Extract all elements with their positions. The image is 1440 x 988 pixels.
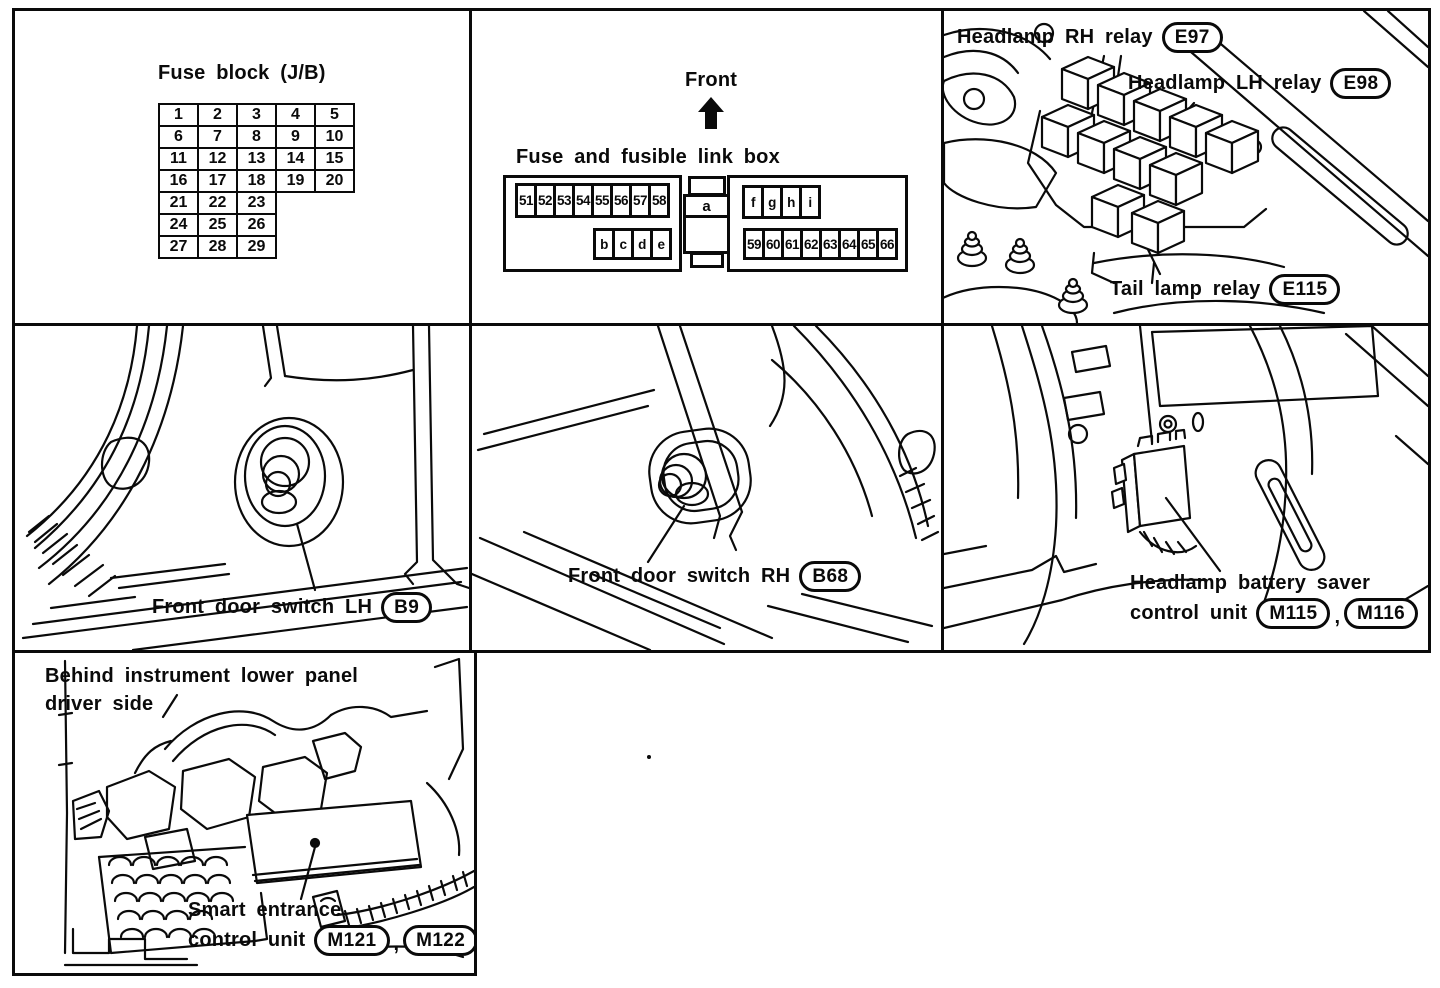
fuse-cell: 28	[197, 235, 238, 259]
label-text: Tail lamp relay	[1110, 278, 1260, 301]
label-battery-saver-line2: control unit M115 , M116	[1130, 598, 1418, 629]
door-switch-rh-illustration	[472, 326, 941, 650]
fuse-row: 6 7 8 9 10	[158, 125, 355, 149]
fuse-cell: 21	[158, 191, 199, 215]
front-arrow-icon	[698, 97, 724, 129]
fuse-cell: 20	[314, 169, 355, 193]
label-battery-saver-line1: Headlamp battery saver	[1130, 572, 1370, 595]
fuse-cell: 13	[236, 147, 277, 171]
front-direction-label: Front	[685, 69, 737, 92]
fuse-cell: 12	[197, 147, 238, 171]
connector-code-badge-b9: B9	[381, 592, 432, 623]
fuse-cell: 4	[275, 103, 316, 127]
fuse-cell: 23	[236, 191, 277, 215]
connector-cell-a: a	[683, 194, 730, 218]
fuse-cell: 3	[236, 103, 277, 127]
label-text: Headlamp LH relay	[1128, 72, 1321, 95]
arrow-stem	[705, 112, 717, 129]
fuse-link-box-title: Fuse and fusible link box	[516, 146, 780, 169]
fuse-cell: 25	[197, 213, 238, 237]
panel-battery-saver: Headlamp battery saver control unit M115…	[941, 323, 1431, 653]
fuse-block-table: 1 2 3 4 5 6 7 8 9 10 11 12 13 14 15 16	[158, 103, 355, 259]
fuse-cell: 16	[158, 169, 199, 193]
panel-door-switch-lh: Front door switch LH B9	[12, 323, 472, 653]
fuse-row: 24 25 26	[158, 213, 355, 237]
note-behind-instrument-line1: Behind instrument lower panel	[45, 665, 358, 688]
connector-code-badge-m116: M116	[1344, 598, 1418, 629]
fuse-row: 21 22 23	[158, 191, 355, 215]
connector-code-badge-m115: M115	[1256, 598, 1330, 629]
fusible-link-cell: 66	[876, 228, 898, 260]
label-text: Front door switch LH	[152, 596, 372, 619]
connector-bottom-notch	[690, 252, 724, 268]
connector-top-notch	[688, 176, 726, 196]
connector-code-badge-e97: E97	[1162, 22, 1223, 53]
label-front-door-switch-rh: Front door switch RH B68	[568, 561, 861, 592]
service-manual-page: Fuse block (J/B) 1 2 3 4 5 6 7 8 9 10 11…	[0, 0, 1440, 988]
code-separator: ,	[394, 933, 400, 956]
fuse-block-title: Fuse block (J/B)	[158, 62, 326, 85]
fuse-cell: 11	[158, 147, 199, 171]
fuse-cell: 6	[158, 125, 199, 149]
label-text: Front door switch RH	[568, 565, 790, 588]
fusible-link-cell: e	[650, 228, 672, 260]
fuse-cell: 14	[275, 147, 316, 171]
fuse-cell: 26	[236, 213, 277, 237]
fuse-cell: 27	[158, 235, 199, 259]
panel-fuse-block: Fuse block (J/B) 1 2 3 4 5 6 7 8 9 10 11…	[12, 8, 472, 326]
label-text: control unit	[1130, 602, 1247, 625]
code-separator: ,	[1334, 606, 1340, 629]
left-bottom-cells: b c d e	[593, 228, 672, 260]
fuse-cell: 29	[236, 235, 277, 259]
panel-smart-entrance: Behind instrument lower panel driver sid…	[12, 650, 477, 976]
fusible-link-cell: 58	[648, 183, 670, 218]
arrow-head	[698, 97, 724, 112]
fuse-row: 27 28 29	[158, 235, 355, 259]
label-text: Headlamp RH relay	[957, 26, 1153, 49]
fuse-cell: 17	[197, 169, 238, 193]
fuse-cell: 8	[236, 125, 277, 149]
fuse-row: 16 17 18 19 20	[158, 169, 355, 193]
right-top-cells: f g h i	[742, 185, 821, 219]
fuse-cell: 7	[197, 125, 238, 149]
panel-fuse-link-box: Front Fuse and fusible link box a 51 52 …	[469, 8, 944, 326]
connector-body	[683, 215, 730, 254]
fuse-cell: 22	[197, 191, 238, 215]
label-tail-lamp-relay: Tail lamp relay E115	[1110, 274, 1340, 305]
right-bottom-cells: 59 60 61 62 63 64 65 66	[743, 228, 898, 260]
label-headlamp-rh-relay: Headlamp RH relay E97	[957, 22, 1223, 53]
fuse-cell: 5	[314, 103, 355, 127]
fuse-cell: 18	[236, 169, 277, 193]
fuse-row: 1 2 3 4 5	[158, 103, 355, 127]
scan-artifact-dot	[647, 755, 651, 759]
label-smart-entrance-line1: Smart entrance	[188, 899, 341, 922]
label-front-door-switch-lh: Front door switch LH B9	[152, 592, 432, 623]
label-headlamp-lh-relay: Headlamp LH relay E98	[1128, 68, 1391, 99]
connector-code-badge-m121: M121	[314, 925, 389, 956]
connector-code-badge-e98: E98	[1330, 68, 1391, 99]
fusible-link-cell: i	[799, 185, 821, 219]
label-text: control unit	[188, 929, 305, 952]
fuse-cell: 19	[275, 169, 316, 193]
connector-code-badge-m122: M122	[403, 925, 477, 956]
connector-code-badge-b68: B68	[799, 561, 861, 592]
panel-engine-relays: Headlamp RH relay E97 Headlamp LH relay …	[941, 8, 1431, 326]
note-behind-instrument-line2: driver side	[45, 693, 153, 716]
panel-door-switch-rh: Front door switch RH B68	[469, 323, 944, 653]
fuse-cell: 24	[158, 213, 199, 237]
connector-code-badge-e115: E115	[1269, 274, 1340, 305]
left-top-cells: 51 52 53 54 55 56 57 58	[515, 183, 670, 218]
fuse-cell: 10	[314, 125, 355, 149]
label-smart-entrance-line2: control unit M121 , M122	[188, 925, 477, 956]
fuse-cell: 1	[158, 103, 199, 127]
fuse-row: 11 12 13 14 15	[158, 147, 355, 171]
fuse-cell: 15	[314, 147, 355, 171]
fuse-cell: 2	[197, 103, 238, 127]
fuse-cell: 9	[275, 125, 316, 149]
